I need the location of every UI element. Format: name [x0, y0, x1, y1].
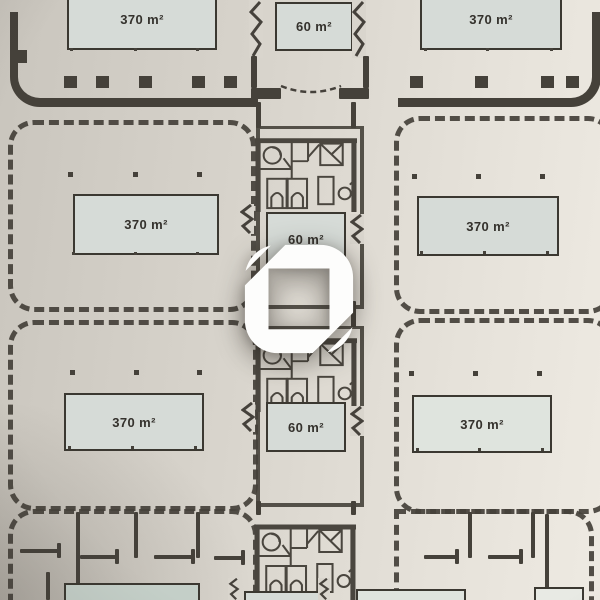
corridor-wall — [455, 549, 459, 564]
wall-break-icon — [352, 0, 366, 58]
core-wall — [351, 102, 356, 128]
partition-wall — [46, 572, 50, 600]
wall-break-icon — [240, 204, 254, 234]
area-label-box: 370 m² — [64, 393, 204, 451]
column-dot — [416, 448, 419, 451]
column-dot — [72, 252, 75, 255]
corridor-wall — [191, 549, 195, 564]
corridor-wall — [488, 555, 522, 559]
column-dot — [197, 370, 202, 375]
column-dot — [412, 174, 417, 179]
column-dot — [70, 370, 75, 375]
wall-break-icon — [241, 402, 255, 432]
wall-break-icon — [228, 578, 240, 600]
area-label-box: 370 m² — [417, 196, 559, 256]
area-label-box — [64, 583, 200, 600]
area-label-box: 370 m² — [420, 0, 562, 50]
core-wall — [251, 56, 257, 88]
column-dot — [546, 251, 549, 254]
area-label: 60 m² — [296, 19, 332, 34]
wall-pier — [224, 76, 237, 88]
column-dot — [541, 448, 544, 451]
column-dot — [131, 446, 134, 449]
wall-pier — [17, 50, 27, 63]
column-dot — [420, 251, 423, 254]
floor-plan-photo: 370 m² 60 m² 370 m² — [0, 0, 600, 600]
core-wall — [363, 56, 369, 88]
column-dot — [537, 371, 542, 376]
column-dot — [424, 48, 427, 51]
corridor-wall — [57, 543, 61, 558]
area-label: 60 m² — [288, 420, 324, 435]
area-label: 370 m² — [466, 219, 510, 234]
column-dot — [540, 174, 545, 179]
corridor-wall — [80, 555, 118, 559]
column-dot — [133, 172, 138, 177]
wall-pier — [541, 76, 554, 88]
area-label-box: 60 m² — [266, 402, 346, 452]
area-label: 370 m² — [112, 415, 156, 430]
partition-wall — [76, 512, 80, 584]
corridor-wall — [115, 549, 119, 564]
area-label-box — [534, 587, 584, 600]
partition-wall — [134, 512, 138, 558]
partition-wall — [531, 512, 535, 558]
area-label-box: 60 m² — [275, 2, 353, 51]
column-dot — [68, 172, 73, 177]
wall-break-icon — [249, 0, 263, 58]
corridor-wall — [214, 556, 244, 560]
wall-pier — [64, 76, 77, 88]
wall-pier — [566, 76, 579, 88]
column-dot — [134, 370, 139, 375]
area-label-box: 370 m² — [412, 395, 552, 453]
area-label: 370 m² — [460, 417, 504, 432]
core-wall — [339, 88, 369, 99]
column-dot — [473, 371, 478, 376]
area-label: 370 m² — [124, 217, 168, 232]
partition-wall — [468, 512, 472, 558]
corridor-wall — [241, 550, 245, 565]
core-wall — [256, 501, 261, 515]
wall-break-icon — [350, 406, 364, 436]
wall-break-icon — [318, 578, 330, 600]
column-dot — [197, 172, 202, 177]
column-dot — [478, 448, 481, 451]
entrance-arc — [279, 82, 343, 100]
wall-pier — [96, 76, 109, 88]
area-label-box — [356, 589, 466, 600]
exterior-wall-left — [10, 12, 258, 107]
area-label: 370 m² — [469, 12, 513, 27]
core-wall — [256, 102, 261, 128]
wall-pier — [139, 76, 152, 88]
column-dot — [409, 371, 414, 376]
partition-wall — [196, 512, 200, 558]
column-dot — [194, 446, 197, 449]
core-fixtures-stairs-wc — [255, 128, 357, 212]
column-dot — [476, 174, 481, 179]
column-dot — [486, 48, 489, 51]
column-dot — [134, 252, 137, 255]
corridor-wall — [424, 555, 458, 559]
logo-watermark — [240, 240, 358, 358]
wall-pier — [410, 76, 423, 88]
corridor-wall — [20, 549, 60, 553]
area-label-box: 370 m² — [73, 194, 219, 255]
core-fixtures-stairs-wc — [254, 514, 356, 600]
core-wall — [251, 88, 281, 99]
core-wall — [351, 501, 356, 515]
wall-pier — [475, 76, 488, 88]
area-label-box — [244, 591, 320, 600]
rounded-square-logo-icon — [240, 240, 358, 358]
corridor-wall — [154, 555, 194, 559]
column-dot — [68, 446, 71, 449]
column-dot — [483, 251, 486, 254]
corridor-wall — [519, 549, 523, 564]
wall-pier — [192, 76, 205, 88]
column-dot — [196, 252, 199, 255]
column-dot — [550, 48, 553, 51]
